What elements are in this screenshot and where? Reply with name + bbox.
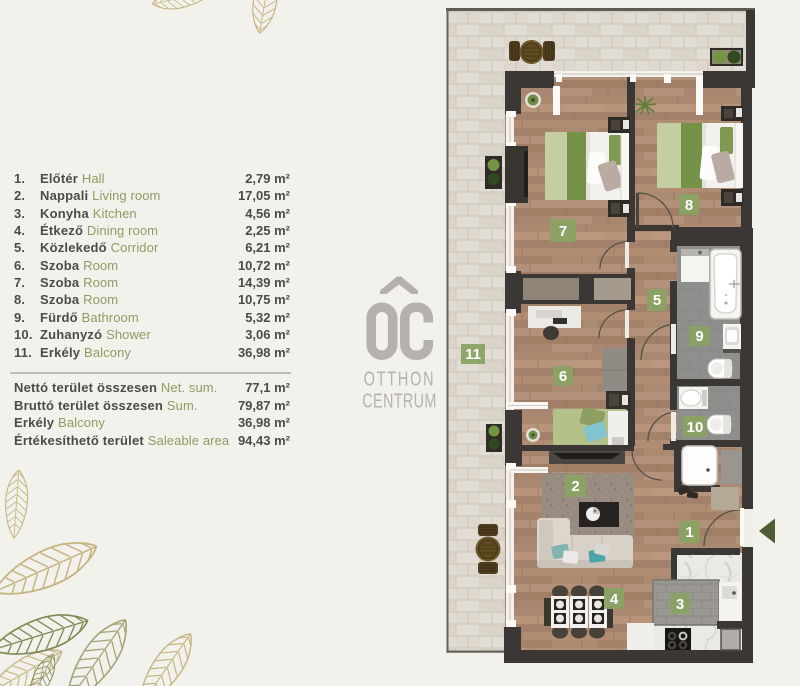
svg-text:Nettó terület összesen Net. su: Nettó terület összesen Net. sum. xyxy=(14,380,217,395)
svg-text:4,56 m²: 4,56 m² xyxy=(245,206,290,221)
svg-text:77,1 m²: 77,1 m² xyxy=(245,380,290,395)
svg-text:11: 11 xyxy=(465,346,481,363)
svg-text:8: 8 xyxy=(685,197,693,214)
svg-text:10,72 m²: 10,72 m² xyxy=(238,258,291,273)
svg-text:6,21 m²: 6,21 m² xyxy=(245,240,290,255)
svg-text:17,05 m²: 17,05 m² xyxy=(238,188,291,203)
svg-text:3: 3 xyxy=(676,596,684,613)
svg-text:10,75 m²: 10,75 m² xyxy=(238,292,291,307)
svg-text:94,43 m²: 94,43 m² xyxy=(238,433,291,448)
svg-text:Értékesíthető terület Saleable: Értékesíthető terület Saleable area xyxy=(14,433,230,448)
svg-text:Erkély Balcony: Erkély Balcony xyxy=(14,415,105,430)
svg-text:11.Erkély Balcony: 11.Erkély Balcony xyxy=(14,345,131,360)
svg-text:2,79 m²: 2,79 m² xyxy=(245,171,290,186)
svg-text:1: 1 xyxy=(685,524,693,541)
svg-text:14,39 m²: 14,39 m² xyxy=(238,275,291,290)
svg-text:79,87 m²: 79,87 m² xyxy=(238,398,291,413)
svg-text:36,98 m²: 36,98 m² xyxy=(238,345,291,360)
svg-text:CENTRUM: CENTRUM xyxy=(362,389,436,412)
svg-text:OTTHON: OTTHON xyxy=(364,367,436,390)
svg-text:5: 5 xyxy=(653,292,661,309)
svg-text:Bruttó terület összesen Sum.: Bruttó terület összesen Sum. xyxy=(14,398,198,413)
svg-text:2: 2 xyxy=(571,478,579,495)
svg-text:2,25 m²: 2,25 m² xyxy=(245,223,290,238)
svg-text:10: 10 xyxy=(687,419,704,436)
svg-text:7: 7 xyxy=(559,223,567,240)
svg-text:36,98 m²: 36,98 m² xyxy=(238,415,291,430)
svg-text:3,06 m²: 3,06 m² xyxy=(245,327,290,342)
svg-text:9: 9 xyxy=(695,328,703,345)
svg-text:4: 4 xyxy=(610,591,619,608)
svg-text:6: 6 xyxy=(559,368,567,385)
svg-text:5,32 m²: 5,32 m² xyxy=(245,310,290,325)
